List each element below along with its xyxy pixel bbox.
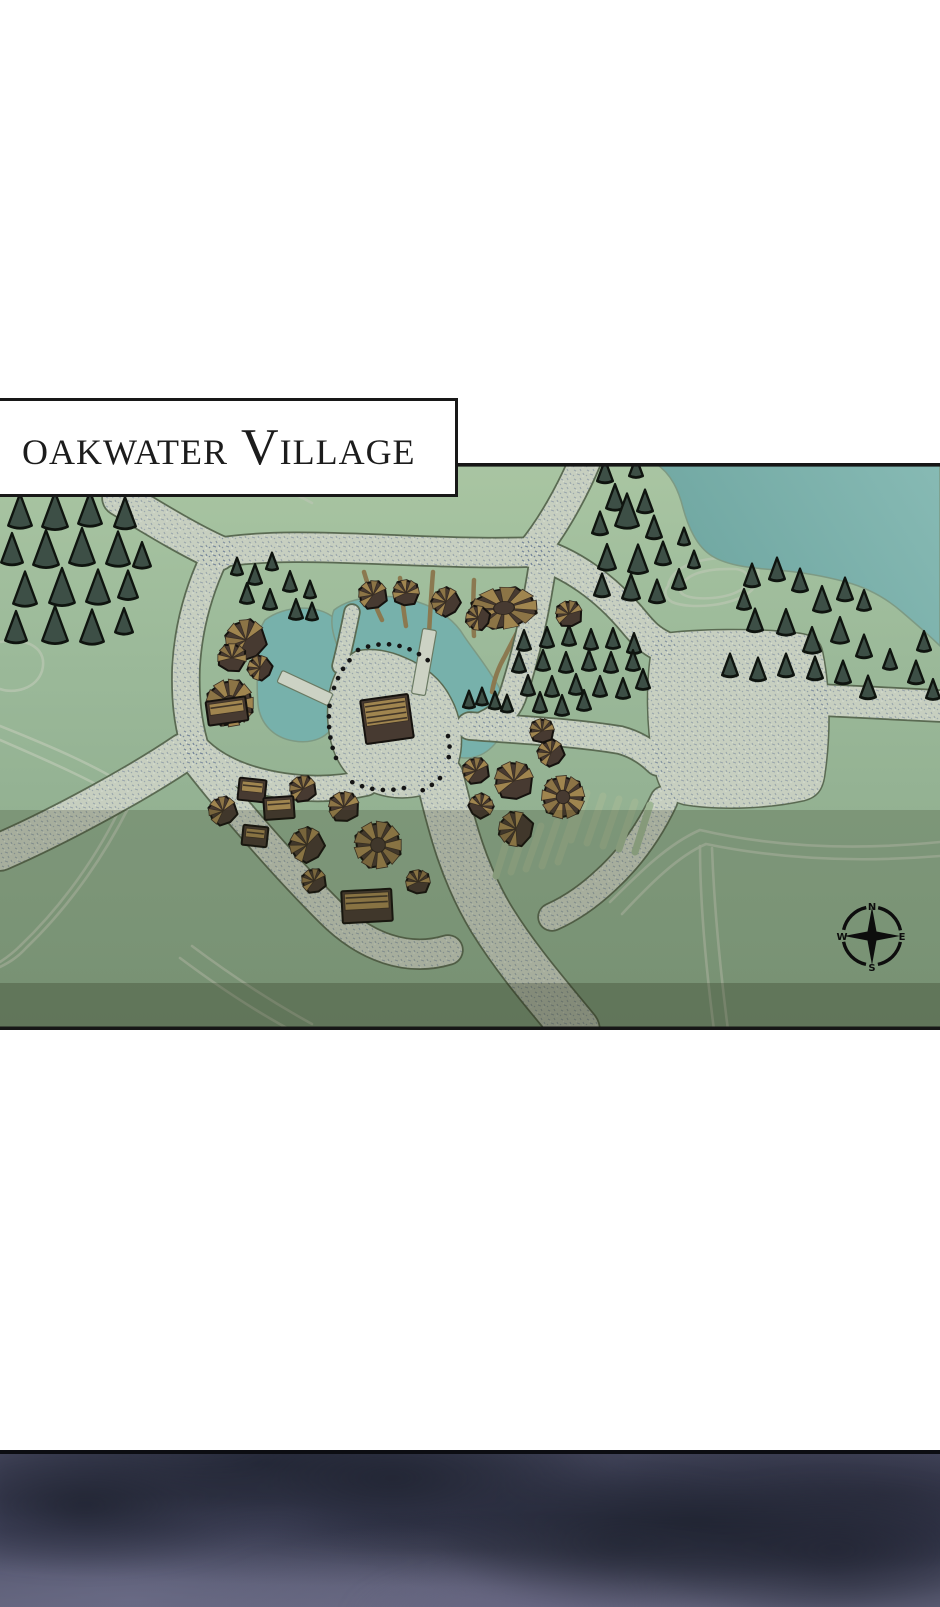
- road-texture: [212, 547, 532, 554]
- village-map-art: [0, 463, 940, 1030]
- map-title: oakwater Village: [0, 422, 416, 474]
- compass-n: N: [868, 902, 876, 913]
- hut: [463, 758, 489, 784]
- house: [360, 694, 414, 744]
- village-map: [0, 463, 940, 1030]
- map-border-bottom: [0, 1027, 940, 1031]
- map-title-banner: oakwater Village: [0, 398, 458, 497]
- compass-w: W: [836, 932, 847, 943]
- compass-rose: N E S W: [832, 895, 912, 975]
- road-texture: [820, 700, 940, 706]
- shade-band-mid: [0, 810, 940, 983]
- cloud-texture: [0, 1450, 940, 1607]
- page-root: oakwater Village N E S W: [0, 0, 940, 1607]
- plaza-texture: [648, 630, 828, 807]
- night-cloud-band: [0, 1450, 940, 1607]
- house: [237, 778, 266, 803]
- hut: [359, 581, 387, 609]
- compass-e: E: [899, 932, 906, 943]
- shade-band-low: [0, 983, 940, 1027]
- house: [206, 696, 249, 725]
- compass-s: S: [868, 963, 875, 974]
